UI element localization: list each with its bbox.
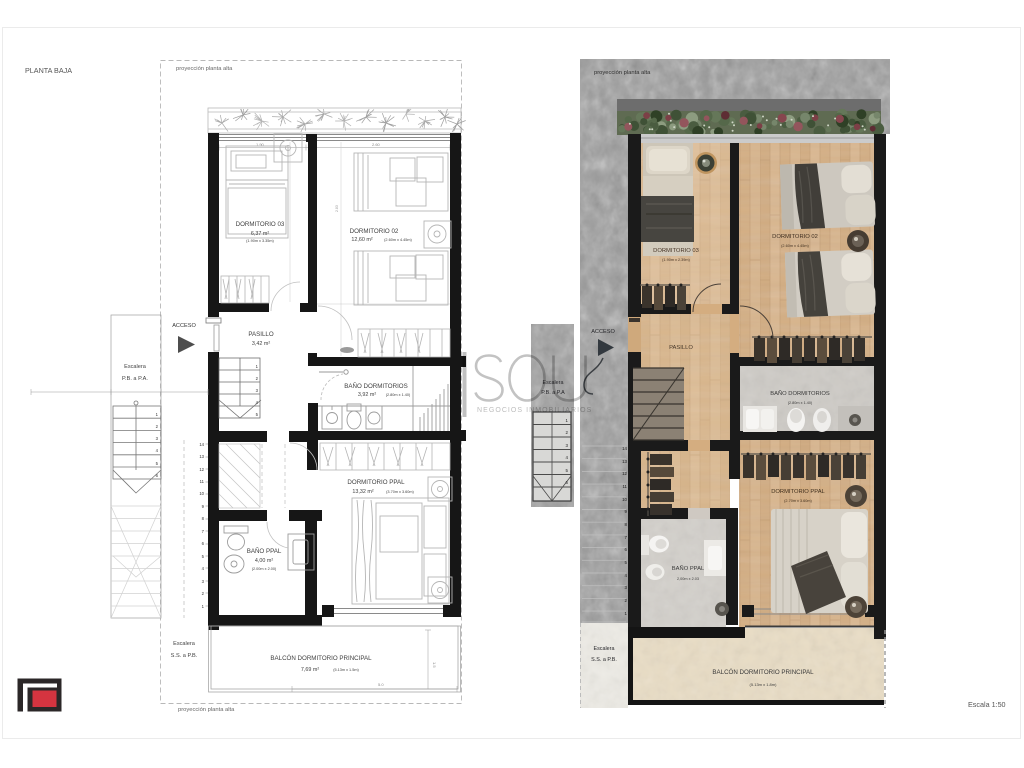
svg-text:PASILLO: PASILLO xyxy=(669,345,693,351)
svg-text:BAÑO PPAL: BAÑO PPAL xyxy=(672,565,705,572)
svg-text:DORMITORIO PPAL: DORMITORIO PPAL xyxy=(347,479,405,486)
svg-text:(5.13m x 1.8m): (5.13m x 1.8m) xyxy=(750,682,778,687)
svg-text:1.5: 1.5 xyxy=(432,662,437,668)
svg-text:3,92 m²: 3,92 m² xyxy=(358,392,376,398)
svg-text:ACCESO: ACCESO xyxy=(591,329,615,335)
svg-text:DORMITORIO PPAL: DORMITORIO PPAL xyxy=(771,489,825,495)
svg-text:11: 11 xyxy=(200,479,205,484)
svg-text:Escalera: Escalera xyxy=(124,364,147,370)
svg-text:5.0: 5.0 xyxy=(378,682,384,687)
svg-text:2.83: 2.83 xyxy=(335,205,339,212)
svg-text:Escalera: Escalera xyxy=(173,641,196,647)
svg-text:12: 12 xyxy=(622,471,627,476)
svg-text:NEGOCIOS INMOBILIARIOS: NEGOCIOS INMOBILIARIOS xyxy=(477,407,592,414)
svg-text:12,60 m²: 12,60 m² xyxy=(351,237,372,243)
svg-text:DORMITORIO 02: DORMITORIO 02 xyxy=(772,234,818,240)
svg-text:13: 13 xyxy=(199,454,204,459)
svg-text:BAÑO PPAL: BAÑO PPAL xyxy=(247,548,282,555)
svg-text:PASILLO: PASILLO xyxy=(248,331,274,338)
svg-text:S.S. a P.B.: S.S. a P.B. xyxy=(591,657,617,663)
svg-text:7,69 m²: 7,69 m² xyxy=(301,667,319,673)
svg-text:4,00 m²: 4,00 m² xyxy=(255,558,273,564)
svg-text:PLANTA BAJA: PLANTA BAJA xyxy=(25,66,72,75)
svg-text:proyección planta alta: proyección planta alta xyxy=(176,66,233,72)
svg-text:14: 14 xyxy=(622,446,627,451)
svg-text:proyección planta alta: proyección planta alta xyxy=(594,70,651,76)
svg-text:(1.90m x 3.35m): (1.90m x 3.35m) xyxy=(246,239,274,243)
svg-text:6,37 m²: 6,37 m² xyxy=(251,231,269,237)
svg-text:(2.80m x 1.40): (2.80m x 1.40) xyxy=(386,393,411,397)
svg-text:(2.00m x 2.00): (2.00m x 2.00) xyxy=(252,567,277,571)
svg-text:BALCÓN DORMITORIO PRINCIPAL: BALCÓN DORMITORIO PRINCIPAL xyxy=(712,669,814,676)
svg-text:Escala 1:50: Escala 1:50 xyxy=(968,700,1006,709)
svg-text:(3.70m x 3.60m): (3.70m x 3.60m) xyxy=(386,490,414,494)
svg-text:(2.80m x 1.40): (2.80m x 1.40) xyxy=(788,401,813,405)
svg-text:2,00m x 2.03: 2,00m x 2.03 xyxy=(677,577,699,581)
svg-text:BAÑO DORMITORIOS: BAÑO DORMITORIOS xyxy=(770,390,830,397)
svg-text:BALCÓN DORMITORIO PRINCIPAL: BALCÓN DORMITORIO PRINCIPAL xyxy=(270,655,372,662)
svg-text:14: 14 xyxy=(199,442,204,447)
svg-text:13: 13 xyxy=(622,459,627,464)
svg-text:BAÑO DORMITORIOS: BAÑO DORMITORIOS xyxy=(344,383,408,390)
svg-text:10: 10 xyxy=(199,491,204,496)
svg-text:13,32 m²: 13,32 m² xyxy=(352,489,373,495)
svg-text:(2.60m x 4.45m): (2.60m x 4.45m) xyxy=(781,244,809,248)
svg-text:(1.90m x 2.39m): (1.90m x 2.39m) xyxy=(662,258,690,262)
svg-text:(2.70m x 3.60m): (2.70m x 3.60m) xyxy=(784,499,812,503)
svg-text:(2.60m x 4.45m): (2.60m x 4.45m) xyxy=(384,238,412,242)
svg-text:S.S. a P.B.: S.S. a P.B. xyxy=(171,653,198,659)
svg-text:ACCESO: ACCESO xyxy=(172,323,196,329)
svg-text:3,42 m²: 3,42 m² xyxy=(252,341,270,347)
svg-text:2.60: 2.60 xyxy=(372,142,381,147)
svg-text:10: 10 xyxy=(622,497,627,502)
svg-text:DORMITORIO 03: DORMITORIO 03 xyxy=(653,248,699,254)
svg-text:12: 12 xyxy=(199,467,204,472)
svg-text:P.B. a P.A.: P.B. a P.A. xyxy=(122,376,148,382)
svg-text:proyección planta alta: proyección planta alta xyxy=(178,707,235,713)
svg-text:11: 11 xyxy=(622,484,627,489)
svg-text:DORMITORIO 02: DORMITORIO 02 xyxy=(350,228,399,235)
svg-text:DORMITORIO 03: DORMITORIO 03 xyxy=(236,221,285,228)
svg-text:Escalera: Escalera xyxy=(594,646,615,652)
svg-text:(5.13m x 1.5m): (5.13m x 1.5m) xyxy=(333,668,359,672)
